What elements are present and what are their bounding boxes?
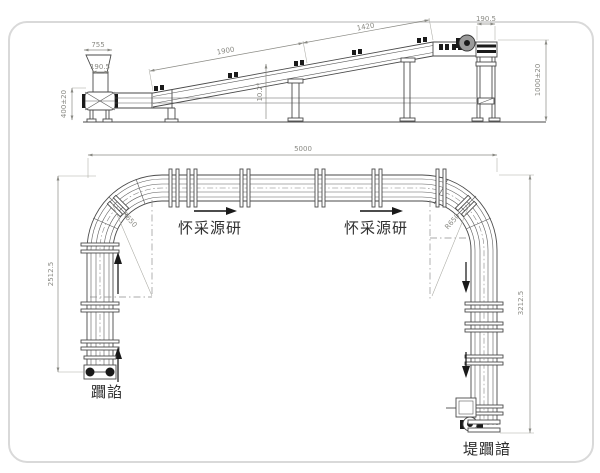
side-view-dimensions: 755 190.5 400±20 1900 1420 10.2° 190.5 1… <box>60 15 549 121</box>
lower-belt-section <box>115 90 476 122</box>
dim-discharge-height: 1000±20 <box>534 64 542 97</box>
dim-right-leg-length: 3212.5 <box>517 291 525 316</box>
incline-support-b <box>400 58 415 121</box>
flow-arrow-up-1 <box>114 252 122 294</box>
dim-left-leg-length: 2512.5 <box>47 262 55 287</box>
drawing-canvas: 755 190.5 400±20 1900 1420 10.2° 190.5 1… <box>0 0 600 473</box>
side-elevation-view: 755 190.5 400±20 1900 1420 10.2° 190.5 1… <box>60 15 549 122</box>
head-pulley-assembly <box>476 42 497 57</box>
dim-incline-angle: 10.2° <box>256 82 264 101</box>
head-section <box>433 35 500 121</box>
conveyor-technical-drawing: 755 190.5 400±20 1900 1420 10.2° 190.5 1… <box>0 0 600 473</box>
tail-drive-pulley <box>82 92 118 110</box>
conveyor-stands <box>81 169 503 415</box>
incline-belt <box>153 42 433 107</box>
flow-arrow-right-1 <box>194 207 237 215</box>
conveyor-path-band <box>87 175 497 425</box>
dim-head-pulley-width: 190.5 <box>476 15 496 23</box>
flow-arrow-right-2 <box>360 207 403 215</box>
dim-hopper-outlet-width: 190.5 <box>90 63 110 71</box>
infeed-label: 躢諂 <box>91 383 123 401</box>
dim-incline-upper: 1420 <box>356 21 375 32</box>
dim-incline-lower: 1900 <box>216 45 235 56</box>
flow-arrow-down-1 <box>462 262 470 293</box>
plan-infeed-end-unit <box>84 356 116 379</box>
flow-label-right: 怀采源研 <box>344 219 408 237</box>
dim-hopper-top-width: 755 <box>91 41 104 49</box>
head-stand <box>472 57 500 121</box>
infeed-hopper <box>86 55 111 92</box>
corner-segments <box>93 179 491 229</box>
dim-overall-length: 5000 <box>294 145 312 153</box>
discharge-label: 堤躢諳 <box>463 440 511 458</box>
corner-construction-lines <box>90 200 470 300</box>
infeed-legs <box>87 110 112 122</box>
dim-corner-radius-right: R650 <box>443 212 461 231</box>
incline-support-a <box>288 79 303 121</box>
dim-infeed-height: 400±20 <box>60 90 68 118</box>
plan-view: R650 R650 怀采源研 怀采源研 <box>47 145 534 458</box>
flow-label-left: 怀采源研 <box>178 219 242 237</box>
